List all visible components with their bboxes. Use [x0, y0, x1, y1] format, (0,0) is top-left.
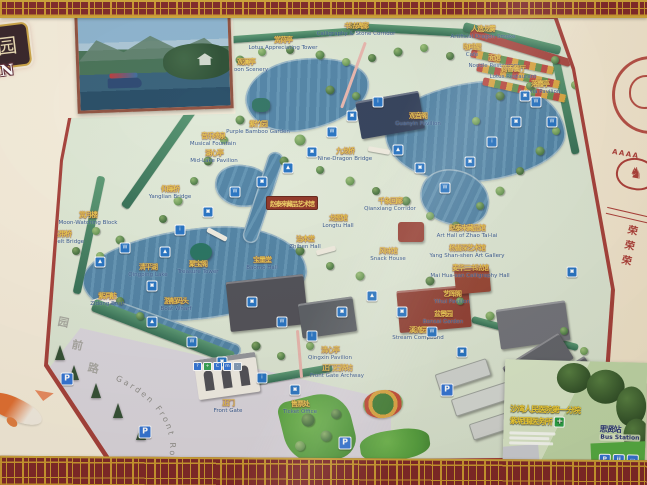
label-cn: 人造龙雾	[451, 26, 516, 34]
boat-marker-icon: ▲	[147, 317, 158, 328]
tree	[476, 202, 484, 210]
tree	[277, 352, 285, 360]
info-marker-icon: i	[307, 331, 318, 342]
tree	[446, 52, 454, 60]
label-en: Lotus Restaurant	[490, 74, 537, 80]
tree	[552, 127, 560, 135]
tree	[331, 409, 341, 419]
map-label: 游船码头Boat Wharf	[161, 298, 192, 312]
highlighted-map-label: 赵泰来藏品艺术馆	[266, 196, 318, 210]
bus-stop-label: Bus Station	[599, 434, 640, 442]
label-cn: 赏月楼	[59, 212, 118, 220]
cam-marker-icon: ▣	[203, 207, 214, 218]
tree	[346, 177, 355, 186]
tree	[356, 272, 365, 281]
award-character: 荣	[626, 221, 639, 238]
map-label: 宝墨堂Baomo Hall	[246, 257, 278, 271]
map-label: 紫洞舫Zidong Boat	[90, 293, 124, 307]
boat-marker-icon: ▲	[95, 257, 106, 268]
cam-marker-icon: ▣	[511, 117, 522, 128]
label-cn: 盆景园	[423, 311, 463, 319]
label-cn: 千象回廊	[364, 198, 416, 206]
tree	[472, 117, 480, 125]
wc-marker-icon: W	[440, 183, 451, 194]
label-cn: 杨善深艺术馆	[429, 245, 504, 253]
tree	[426, 212, 434, 220]
tree	[252, 342, 261, 351]
tree	[136, 312, 144, 320]
label-cn: 治本堂	[289, 236, 320, 244]
label-cn: 观音阁	[395, 113, 441, 121]
wc-marker-icon: W	[120, 243, 131, 254]
label-cn: 龙图馆	[322, 215, 353, 223]
road-name-char: 园	[56, 313, 70, 331]
cam-marker-icon: ▣	[347, 111, 358, 122]
label-cn: 艺晖阁	[434, 291, 470, 299]
frame-meander-top	[0, 0, 647, 18]
first-aid-cross-icon: +	[554, 416, 565, 427]
tree	[342, 58, 350, 66]
label-en: Mid-Lake Pavilion	[190, 158, 237, 164]
label-cn: 清平湖	[128, 264, 167, 272]
map-label: 九龙桥Nine-Dragon Bridge	[318, 148, 372, 162]
label-en: Lotus Appreciating Tower	[248, 45, 317, 51]
award-character: 荣	[620, 251, 633, 268]
map-label: 艺晖阁Yihui Pavilion	[434, 291, 470, 305]
cam-marker-icon: ▣	[257, 177, 268, 188]
label-cn: 湖心亭	[190, 150, 237, 158]
label-en: Jade Belt Bridge	[40, 239, 84, 245]
tree	[368, 54, 376, 62]
label-cn: 九龙桥	[318, 148, 372, 156]
tree	[496, 187, 505, 196]
inset-fine-print	[509, 436, 549, 440]
tree	[302, 414, 315, 427]
round-pavilion	[190, 243, 212, 261]
frame-meander-bottom	[0, 456, 647, 485]
cam-marker-icon: ▣	[465, 157, 476, 168]
label-cn: 咖啡屋	[463, 44, 481, 52]
parking-marker-icon: P	[61, 373, 74, 386]
wc-marker-icon: W	[187, 337, 198, 348]
tree	[394, 48, 403, 57]
boat-marker-icon: ▲	[367, 291, 378, 302]
tree	[295, 441, 305, 451]
map-label: 书法碑廊Calligraphy & Stone Corridor	[317, 23, 396, 37]
label-cn: 正门石牌坊	[310, 365, 364, 373]
info-marker-icon: i	[487, 137, 498, 148]
map-label: 人造龙雾Artificial Dragon Smoke	[451, 26, 516, 40]
wc-marker-icon: W	[427, 327, 438, 338]
map-label: 麦华三书法馆Mai Hua-san Calligraphy Hall	[430, 265, 509, 279]
tree	[372, 187, 380, 195]
map-label: 音乐喷泉Musical Fountain	[190, 133, 236, 147]
tree	[326, 86, 335, 95]
tree	[316, 166, 324, 174]
wc-marker-icon: W	[531, 97, 542, 108]
label-en: Zhiben Hall	[289, 244, 320, 250]
map-label: 紫竹园Purple Bamboo Garden	[226, 121, 290, 135]
label-en: Longtu Hall	[322, 223, 353, 229]
tree	[159, 215, 167, 223]
map-label: 赏月楼Moon-Watching Block	[59, 212, 118, 226]
label-en: Yihui Pavilion	[434, 299, 470, 305]
cam-marker-icon: ▣	[520, 91, 531, 102]
info-marker-icon: i	[373, 97, 384, 108]
map-label: 赵泰来藏品馆Art Hall of Zhao Tai-lai	[437, 225, 498, 239]
photo-boat-canopy	[109, 73, 137, 79]
tree	[580, 347, 588, 355]
map-label: 盆景园Bonsai Garden	[423, 311, 463, 325]
baomo-hall-building	[226, 274, 309, 332]
label-en: Bonsai Garden	[423, 319, 463, 325]
scenic-photo-inset	[74, 9, 233, 113]
cam-marker-icon: ▣	[247, 297, 258, 308]
parking-marker-icon: P	[339, 437, 352, 450]
label-cn: 仰廉桥	[149, 186, 192, 194]
info-marker-icon: i	[175, 225, 186, 236]
map-label: 观音阁Guanyin Pavilion	[395, 113, 441, 127]
tree	[486, 312, 495, 321]
map-label: 售票处Ticket Office	[283, 401, 317, 415]
label-cn: 赏荷亭	[248, 37, 317, 45]
tree	[92, 227, 100, 235]
label-en: Mai Hua-san Calligraphy Hall	[430, 273, 509, 279]
tree	[560, 327, 568, 335]
horse-crest-icon: ♞	[614, 155, 647, 193]
label-en: Front Gate Archway	[310, 373, 364, 379]
map-label: 仰廉桥Yanglian Bridge	[149, 186, 192, 200]
svg-text:Garden Front Road: Garden Front Road	[85, 360, 177, 466]
label-cn: 面馆	[468, 55, 519, 63]
label-en: Calligraphy & Stone Corridor	[317, 31, 396, 37]
label-cn: 荷香餐厅	[490, 66, 537, 74]
map-label: 湖心亭Mid-Lake Pavilion	[190, 150, 237, 164]
map-label: 清平湖Qingping Lake	[128, 264, 167, 278]
decorative-seal-ring	[612, 56, 647, 134]
label-en: Art Hall of Zhao Tai-lai	[437, 233, 498, 239]
label-en: Boat Wharf	[161, 306, 192, 312]
tree	[496, 92, 505, 101]
tree	[316, 51, 325, 60]
wc-marker-icon: W	[277, 317, 288, 328]
label-en: Ticket Office	[283, 409, 317, 415]
map-label: 赏荷亭Lotus Appreciating Tower	[248, 37, 317, 51]
wc-marker-icon: W	[547, 117, 558, 128]
label-en: Qingping Lake	[128, 272, 167, 278]
tree	[72, 247, 80, 255]
clinic-name-line1: 沙湾人民医院第一分院	[510, 403, 580, 416]
cam-marker-icon: ▣	[290, 385, 301, 396]
label-en: Qingxin Pavilion	[308, 355, 352, 361]
inset-fine-print	[509, 431, 555, 435]
label-en: Treasure Tower	[177, 269, 218, 275]
map-label: 杨善深艺术馆Yang Shan-shen Art Gallery	[429, 245, 504, 259]
clinic-inset-photo: 沙湾人民医院第一分院 紫坭围医务所+ 思贤站 Bus Station Pii▭	[503, 359, 647, 464]
label-cn: 紫竹园	[226, 121, 290, 129]
pine-tree	[55, 345, 65, 360]
map-label: 聚宝阁Treasure Tower	[177, 261, 218, 275]
cam-marker-icon: ▣	[397, 307, 408, 318]
label-en: Baomo Hall	[246, 265, 278, 271]
tree	[551, 56, 559, 64]
label-cn: 游船码头	[161, 298, 192, 306]
label-en: Purple Bamboo Garden	[226, 129, 290, 135]
tree	[536, 147, 545, 156]
tree	[516, 167, 524, 175]
label-cn: 风味馆	[370, 248, 406, 256]
garden-logo-text: EN	[0, 60, 16, 82]
cam-marker-icon: ▣	[567, 267, 578, 278]
label-cn: 麦华三书法馆	[430, 265, 509, 273]
label-en: Yanglian Bridge	[149, 194, 192, 200]
label-cn: 赵泰来藏品馆	[437, 225, 498, 233]
label-en: Zidong Boat	[90, 301, 124, 307]
map-label: 荷香餐厅Lotus Restaurant	[490, 66, 537, 80]
tree	[321, 431, 332, 442]
parking-marker-icon: P	[441, 384, 454, 397]
tree	[420, 44, 428, 52]
map-label: 治本堂Zhiben Hall	[289, 236, 320, 250]
map-label: 清心亭Qingxin Pavilion	[308, 347, 352, 361]
label-en: Nine-Dragon Bridge	[318, 156, 372, 162]
label-cn: 聚宝阁	[177, 261, 218, 269]
boat-marker-icon: ▲	[160, 247, 171, 258]
label-en: Qianxiang Corridor	[364, 206, 416, 212]
label-cn: 紫洞舫	[90, 293, 124, 301]
boat-marker-icon: ▲	[283, 163, 294, 174]
photo-trees	[162, 42, 233, 80]
label-en: Guanyin Pavilion	[395, 121, 441, 127]
tree	[326, 262, 334, 270]
label-en: Moon-Watching Block	[59, 220, 118, 226]
photo-dragon-boat	[108, 77, 142, 88]
red-pavilion	[398, 222, 424, 242]
cam-marker-icon: ▣	[457, 347, 468, 358]
label-en: Musical Fountain	[190, 141, 236, 147]
clinic-name-line2: 紫坭围医务所+	[510, 415, 565, 427]
tree	[190, 177, 198, 185]
label-cn: 书法碑廊	[317, 23, 396, 31]
label-en: Snack House	[370, 256, 406, 262]
label-cn: 售票处	[283, 401, 317, 409]
map-label: 玉带桥Jade Belt Bridge	[40, 231, 84, 245]
lake-pavilion	[252, 98, 270, 112]
cam-marker-icon: ▣	[147, 281, 158, 292]
label-cn: 清心亭	[308, 347, 352, 355]
award-character: 荣	[623, 236, 636, 253]
cam-marker-icon: ▣	[337, 307, 348, 318]
tree	[352, 92, 360, 100]
label-en: Yang Shan-shen Art Gallery	[429, 253, 504, 259]
wc-marker-icon: W	[230, 187, 241, 198]
map-label: 千象回廊Qianxiang Corridor	[364, 198, 416, 212]
boat-marker-icon: ▲	[393, 145, 404, 156]
cam-marker-icon: ▣	[307, 147, 318, 158]
koi-fish-tail	[32, 384, 54, 403]
label-cn: 落霞亭	[520, 81, 561, 89]
map-label: 风味馆Snack House	[370, 248, 406, 262]
tree	[295, 135, 306, 146]
photographed-garden-map-sign: 书法碑廊Calligraphy & Stone Corridor赏荷亭Lotus…	[0, 0, 647, 485]
award-divider	[606, 207, 647, 224]
label-cn: 宝墨堂	[246, 257, 278, 265]
wc-marker-icon: W	[327, 127, 338, 138]
label-en: Artificial Dragon Smoke	[451, 34, 516, 40]
map-label: 龙图馆Longtu Hall	[322, 215, 353, 229]
map-label: 正门石牌坊Front Gate Archway	[310, 365, 364, 379]
cam-marker-icon: ▣	[415, 163, 426, 174]
label-cn: 玉带桥	[40, 231, 84, 239]
